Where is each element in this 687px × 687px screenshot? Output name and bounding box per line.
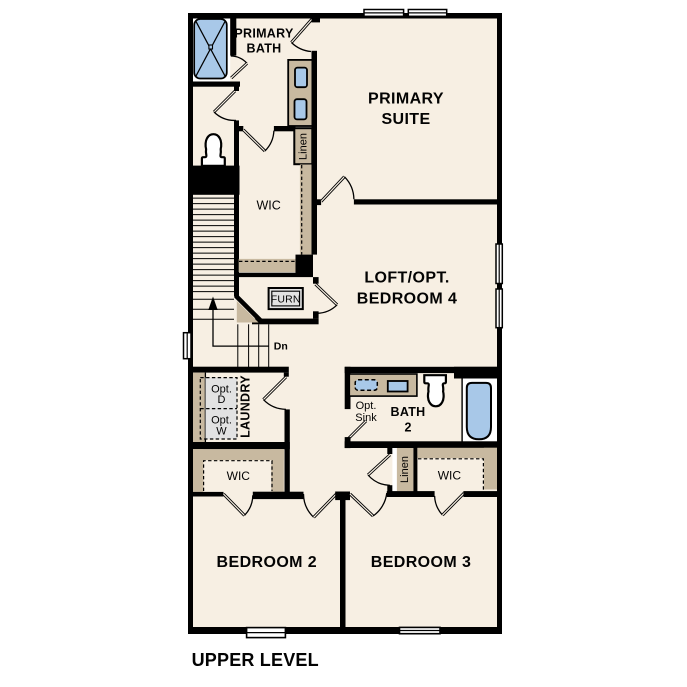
svg-text:LAUNDRY: LAUNDRY bbox=[239, 375, 253, 438]
svg-text:SUITE: SUITE bbox=[381, 111, 430, 128]
svg-text:WIC: WIC bbox=[227, 469, 251, 483]
svg-text:D: D bbox=[218, 394, 226, 406]
svg-text:BEDROOM 2: BEDROOM 2 bbox=[217, 554, 318, 571]
svg-text:W: W bbox=[216, 425, 227, 437]
svg-text:WIC: WIC bbox=[256, 199, 280, 213]
svg-text:BEDROOM 3: BEDROOM 3 bbox=[371, 554, 472, 571]
svg-text:Dn: Dn bbox=[274, 341, 288, 353]
svg-text:Sink: Sink bbox=[355, 412, 377, 424]
svg-text:Linen: Linen bbox=[399, 456, 411, 483]
svg-text:BEDROOM 4: BEDROOM 4 bbox=[357, 290, 458, 307]
svg-text:PRIMARY: PRIMARY bbox=[234, 27, 294, 41]
svg-text:Opt.: Opt. bbox=[356, 400, 377, 412]
svg-text:2: 2 bbox=[405, 421, 412, 435]
svg-text:UPPER LEVEL: UPPER LEVEL bbox=[192, 650, 319, 670]
svg-text:WIC: WIC bbox=[438, 468, 462, 482]
svg-text:FURN: FURN bbox=[271, 293, 301, 305]
svg-text:PRIMARY: PRIMARY bbox=[368, 90, 444, 107]
svg-text:Linen: Linen bbox=[298, 133, 310, 160]
svg-text:BATH: BATH bbox=[247, 42, 282, 56]
svg-text:LOFT/OPT.: LOFT/OPT. bbox=[364, 269, 449, 286]
svg-text:BATH: BATH bbox=[391, 405, 426, 419]
